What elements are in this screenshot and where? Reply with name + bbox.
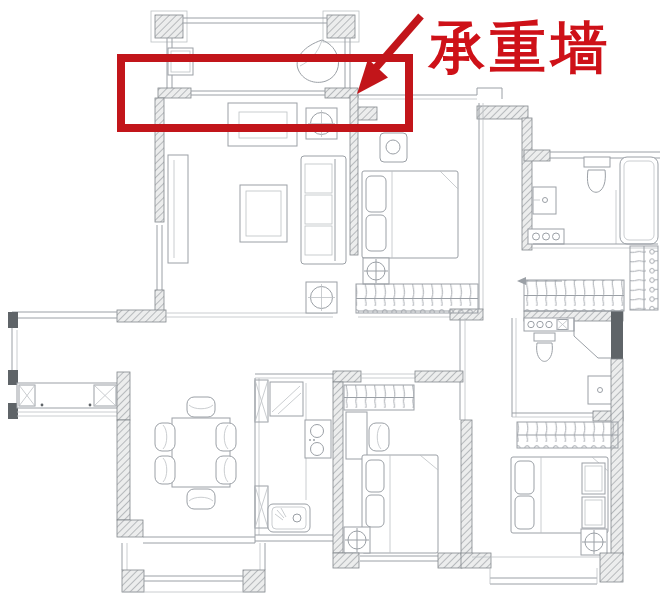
bedroom-bottom-middle bbox=[333, 371, 463, 568]
floor-plan-svg: 承重墙 bbox=[0, 0, 660, 594]
nightstand-icon bbox=[582, 497, 605, 528]
west-wall bbox=[117, 420, 130, 520]
nightstand-icon bbox=[380, 133, 407, 162]
dining-chair-icon bbox=[155, 423, 175, 451]
annotation-label: 承重墙 bbox=[427, 15, 612, 80]
nightstand-icon bbox=[582, 463, 605, 494]
balcony-column-icon bbox=[122, 570, 144, 592]
closet-corridor bbox=[460, 246, 658, 420]
bathroom-top-right bbox=[522, 118, 660, 250]
corner-wall bbox=[438, 553, 462, 568]
corner-wall bbox=[333, 553, 359, 568]
kitchen-sink-icon bbox=[268, 504, 310, 532]
washbasin-icon bbox=[533, 187, 556, 214]
entry-hall bbox=[8, 312, 130, 420]
balcony-column-icon bbox=[327, 15, 355, 38]
north-wall-block bbox=[477, 106, 528, 119]
wall-stub bbox=[611, 311, 623, 359]
planter-basin-curl bbox=[300, 40, 322, 66]
entry-arrow-head bbox=[517, 277, 526, 285]
load-bearing-wall-segment bbox=[158, 88, 191, 98]
outer-wall-step bbox=[477, 88, 502, 99]
floor-lamp-icon bbox=[344, 527, 370, 553]
washbasin-icon bbox=[588, 376, 612, 404]
desk-icon bbox=[346, 412, 367, 459]
wall-stub bbox=[8, 312, 18, 328]
wall-stub bbox=[415, 371, 463, 382]
wall-stub bbox=[524, 150, 550, 161]
dining-chair-icon bbox=[187, 397, 215, 417]
balcony-top bbox=[151, 11, 359, 88]
kitchen-stove-icon bbox=[305, 420, 331, 458]
bedroom-west-wall bbox=[350, 95, 358, 255]
coffee-table-icon bbox=[240, 185, 287, 242]
east-wall bbox=[611, 359, 623, 555]
bed-icon bbox=[362, 455, 438, 553]
sofa-icon bbox=[301, 156, 346, 264]
floor-lamp-icon bbox=[581, 529, 607, 555]
toilet-bowl bbox=[587, 170, 605, 192]
bedroom-west-wall bbox=[461, 420, 472, 555]
bedroom-west-wall bbox=[333, 382, 343, 553]
desk-chair-icon bbox=[369, 423, 389, 451]
corner-wall bbox=[600, 553, 623, 582]
west-wall bbox=[155, 98, 164, 222]
storage-strip-icon bbox=[168, 155, 188, 263]
living-room bbox=[117, 88, 377, 322]
wall-pillar bbox=[117, 372, 130, 420]
balcony-column-icon bbox=[243, 570, 265, 592]
wall-stub bbox=[333, 371, 361, 382]
dining-chair-icon bbox=[216, 456, 236, 484]
kitchen bbox=[255, 374, 333, 543]
balcony-bottom bbox=[122, 543, 265, 592]
corner-wall bbox=[117, 520, 143, 537]
balcony-column-icon bbox=[155, 15, 183, 38]
dining-chair-icon bbox=[155, 456, 175, 484]
dining-chair-icon bbox=[216, 423, 236, 451]
bedroom-top bbox=[350, 88, 528, 320]
dining-area bbox=[117, 397, 255, 543]
sink-counter bbox=[528, 229, 564, 244]
shower-door bbox=[574, 336, 598, 358]
toilet-bowl bbox=[537, 343, 553, 361]
west-wall bbox=[155, 290, 164, 312]
dining-chair-icon bbox=[187, 489, 215, 509]
bathtub-icon bbox=[620, 157, 658, 244]
floor-plan-image: 承重墙 bbox=[0, 0, 660, 594]
bathroom-middle bbox=[512, 318, 623, 421]
corner-wall bbox=[117, 310, 166, 322]
floor-lamp-icon bbox=[363, 258, 389, 284]
toilet-icon bbox=[534, 333, 555, 341]
shoe-cabinet-icon bbox=[17, 383, 118, 408]
corner-wall bbox=[461, 553, 491, 568]
toilet-icon bbox=[584, 157, 610, 167]
